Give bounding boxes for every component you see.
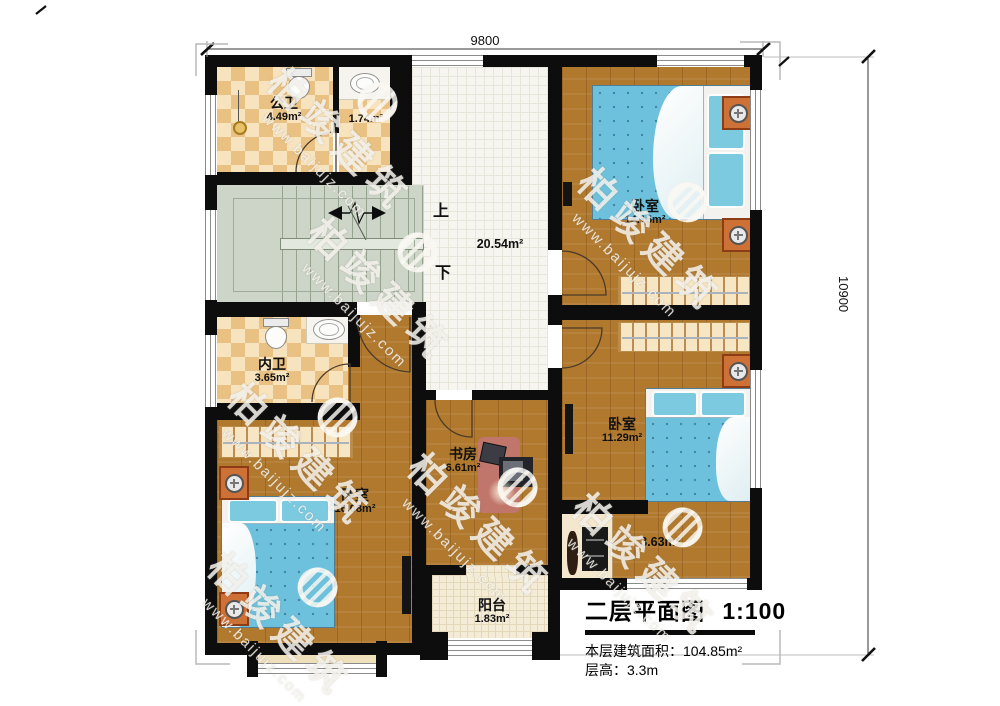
room-name: 阳台	[475, 598, 510, 613]
room-area: 4.49m²	[267, 111, 302, 124]
plan-scale: 1:100	[722, 598, 786, 624]
title-rule	[585, 630, 755, 635]
blanket	[716, 417, 751, 501]
dimension-top-label: 9800	[460, 33, 510, 48]
wall	[516, 565, 548, 575]
bed-mid-right	[645, 388, 752, 502]
room-label-balcony: 阳台 1.83m²	[475, 598, 510, 626]
wall	[376, 641, 387, 677]
room-area: 6.61m²	[446, 462, 481, 475]
toilet-icon	[286, 68, 312, 98]
window	[750, 90, 762, 210]
room-label-hallway: 20.54m²	[477, 238, 524, 251]
lamp-icon	[225, 474, 244, 493]
pillow	[700, 391, 746, 417]
nightstand	[219, 466, 249, 500]
floor-height-note: 层高：3.3m	[585, 661, 786, 680]
wall	[348, 315, 360, 367]
toilet-icon	[263, 318, 289, 348]
shower-hose	[238, 90, 239, 122]
window	[750, 370, 762, 488]
room-name: 书房	[446, 447, 481, 462]
balcony-door-threshold	[466, 565, 516, 577]
window	[205, 335, 217, 407]
window	[448, 640, 532, 656]
room-label-bedroom-mid-right: 卧室 11.29m²	[602, 417, 642, 445]
shower-icon	[233, 121, 247, 135]
room-area: 3.65m²	[255, 372, 290, 385]
window	[205, 95, 217, 175]
tv-icon	[565, 404, 573, 454]
wall	[548, 305, 762, 320]
title-block: 二层平面图 1:100 本层建筑面积：104.85m² 层高：3.3m	[585, 592, 786, 680]
wall	[426, 390, 436, 400]
wall	[548, 55, 562, 250]
sink-icon	[313, 319, 345, 340]
room-name: 卧室	[335, 488, 376, 503]
pillow	[228, 499, 278, 523]
wall	[390, 55, 412, 178]
room-name: 公卫	[267, 96, 302, 111]
stair-up-label: 上	[433, 197, 449, 221]
room-area: 1.74m²	[349, 113, 384, 126]
wall	[333, 67, 339, 133]
balcony-post	[532, 632, 560, 660]
room-area: 14.15m²	[625, 214, 666, 227]
hallway-floor	[412, 67, 548, 390]
sink-icon	[350, 73, 380, 94]
stair-outline	[233, 198, 415, 292]
wardrobe-mid-right	[618, 322, 752, 352]
wall	[247, 641, 258, 677]
room-name: 卧室	[625, 199, 666, 214]
window	[205, 210, 217, 300]
dimension-right-label: 10900	[836, 276, 851, 312]
pillow	[280, 499, 330, 523]
pillow	[652, 391, 698, 417]
tv-icon	[563, 182, 572, 206]
room-area: 1.83m²	[475, 613, 510, 626]
pillow	[707, 152, 745, 208]
tv-icon	[402, 556, 411, 614]
room-label-corridor: 3.63m²	[640, 536, 680, 549]
wall	[205, 403, 360, 420]
room-area: 3.63m²	[640, 536, 680, 549]
window	[657, 55, 744, 67]
lamp-icon	[225, 600, 244, 619]
lamp-icon	[729, 104, 748, 123]
room-name: 卧室	[602, 417, 642, 432]
room-area: 11.29m²	[602, 432, 642, 445]
floor-plan-sheet: 9800 10900 公卫 4.49m² 1.74m² 20.54m² 上 下 …	[0, 0, 1000, 706]
wall	[562, 500, 648, 514]
desk-lamp-glow	[488, 478, 516, 506]
wall	[205, 302, 357, 317]
room-label-bedroom-bottom-left: 卧室 16.08m²	[335, 488, 376, 516]
wall	[426, 565, 466, 575]
wall	[472, 390, 548, 400]
wall	[548, 368, 562, 578]
cabinet-icon	[582, 527, 608, 571]
wall	[205, 172, 412, 185]
stair-down-label: 下	[435, 259, 451, 283]
room-label-shower-room: 1.74m²	[349, 113, 384, 126]
wardrobe-bottom-left	[219, 426, 353, 458]
lamp-icon	[729, 362, 748, 381]
room-name: 内卫	[255, 357, 290, 372]
wardrobe-top-right	[618, 276, 752, 307]
window	[412, 55, 483, 67]
floor-area-note: 本层建筑面积：104.85m²	[585, 642, 786, 661]
vase-icon	[567, 531, 578, 575]
room-label-public-bath: 公卫 4.49m²	[267, 96, 302, 124]
room-label-study: 书房 6.61m²	[446, 447, 481, 475]
room-label-bedroom-top-right: 卧室 14.15m²	[625, 199, 666, 227]
wall	[205, 643, 440, 655]
lamp-icon	[729, 226, 748, 245]
room-area: 20.54m²	[477, 238, 524, 251]
room-area: 16.08m²	[335, 503, 376, 516]
nightstand	[219, 592, 249, 626]
room-label-ensuite-bath: 内卫 3.65m²	[255, 357, 290, 385]
window	[258, 663, 376, 676]
balcony-post	[420, 632, 448, 660]
window	[627, 578, 747, 590]
plan-title: 二层平面图	[585, 598, 705, 624]
